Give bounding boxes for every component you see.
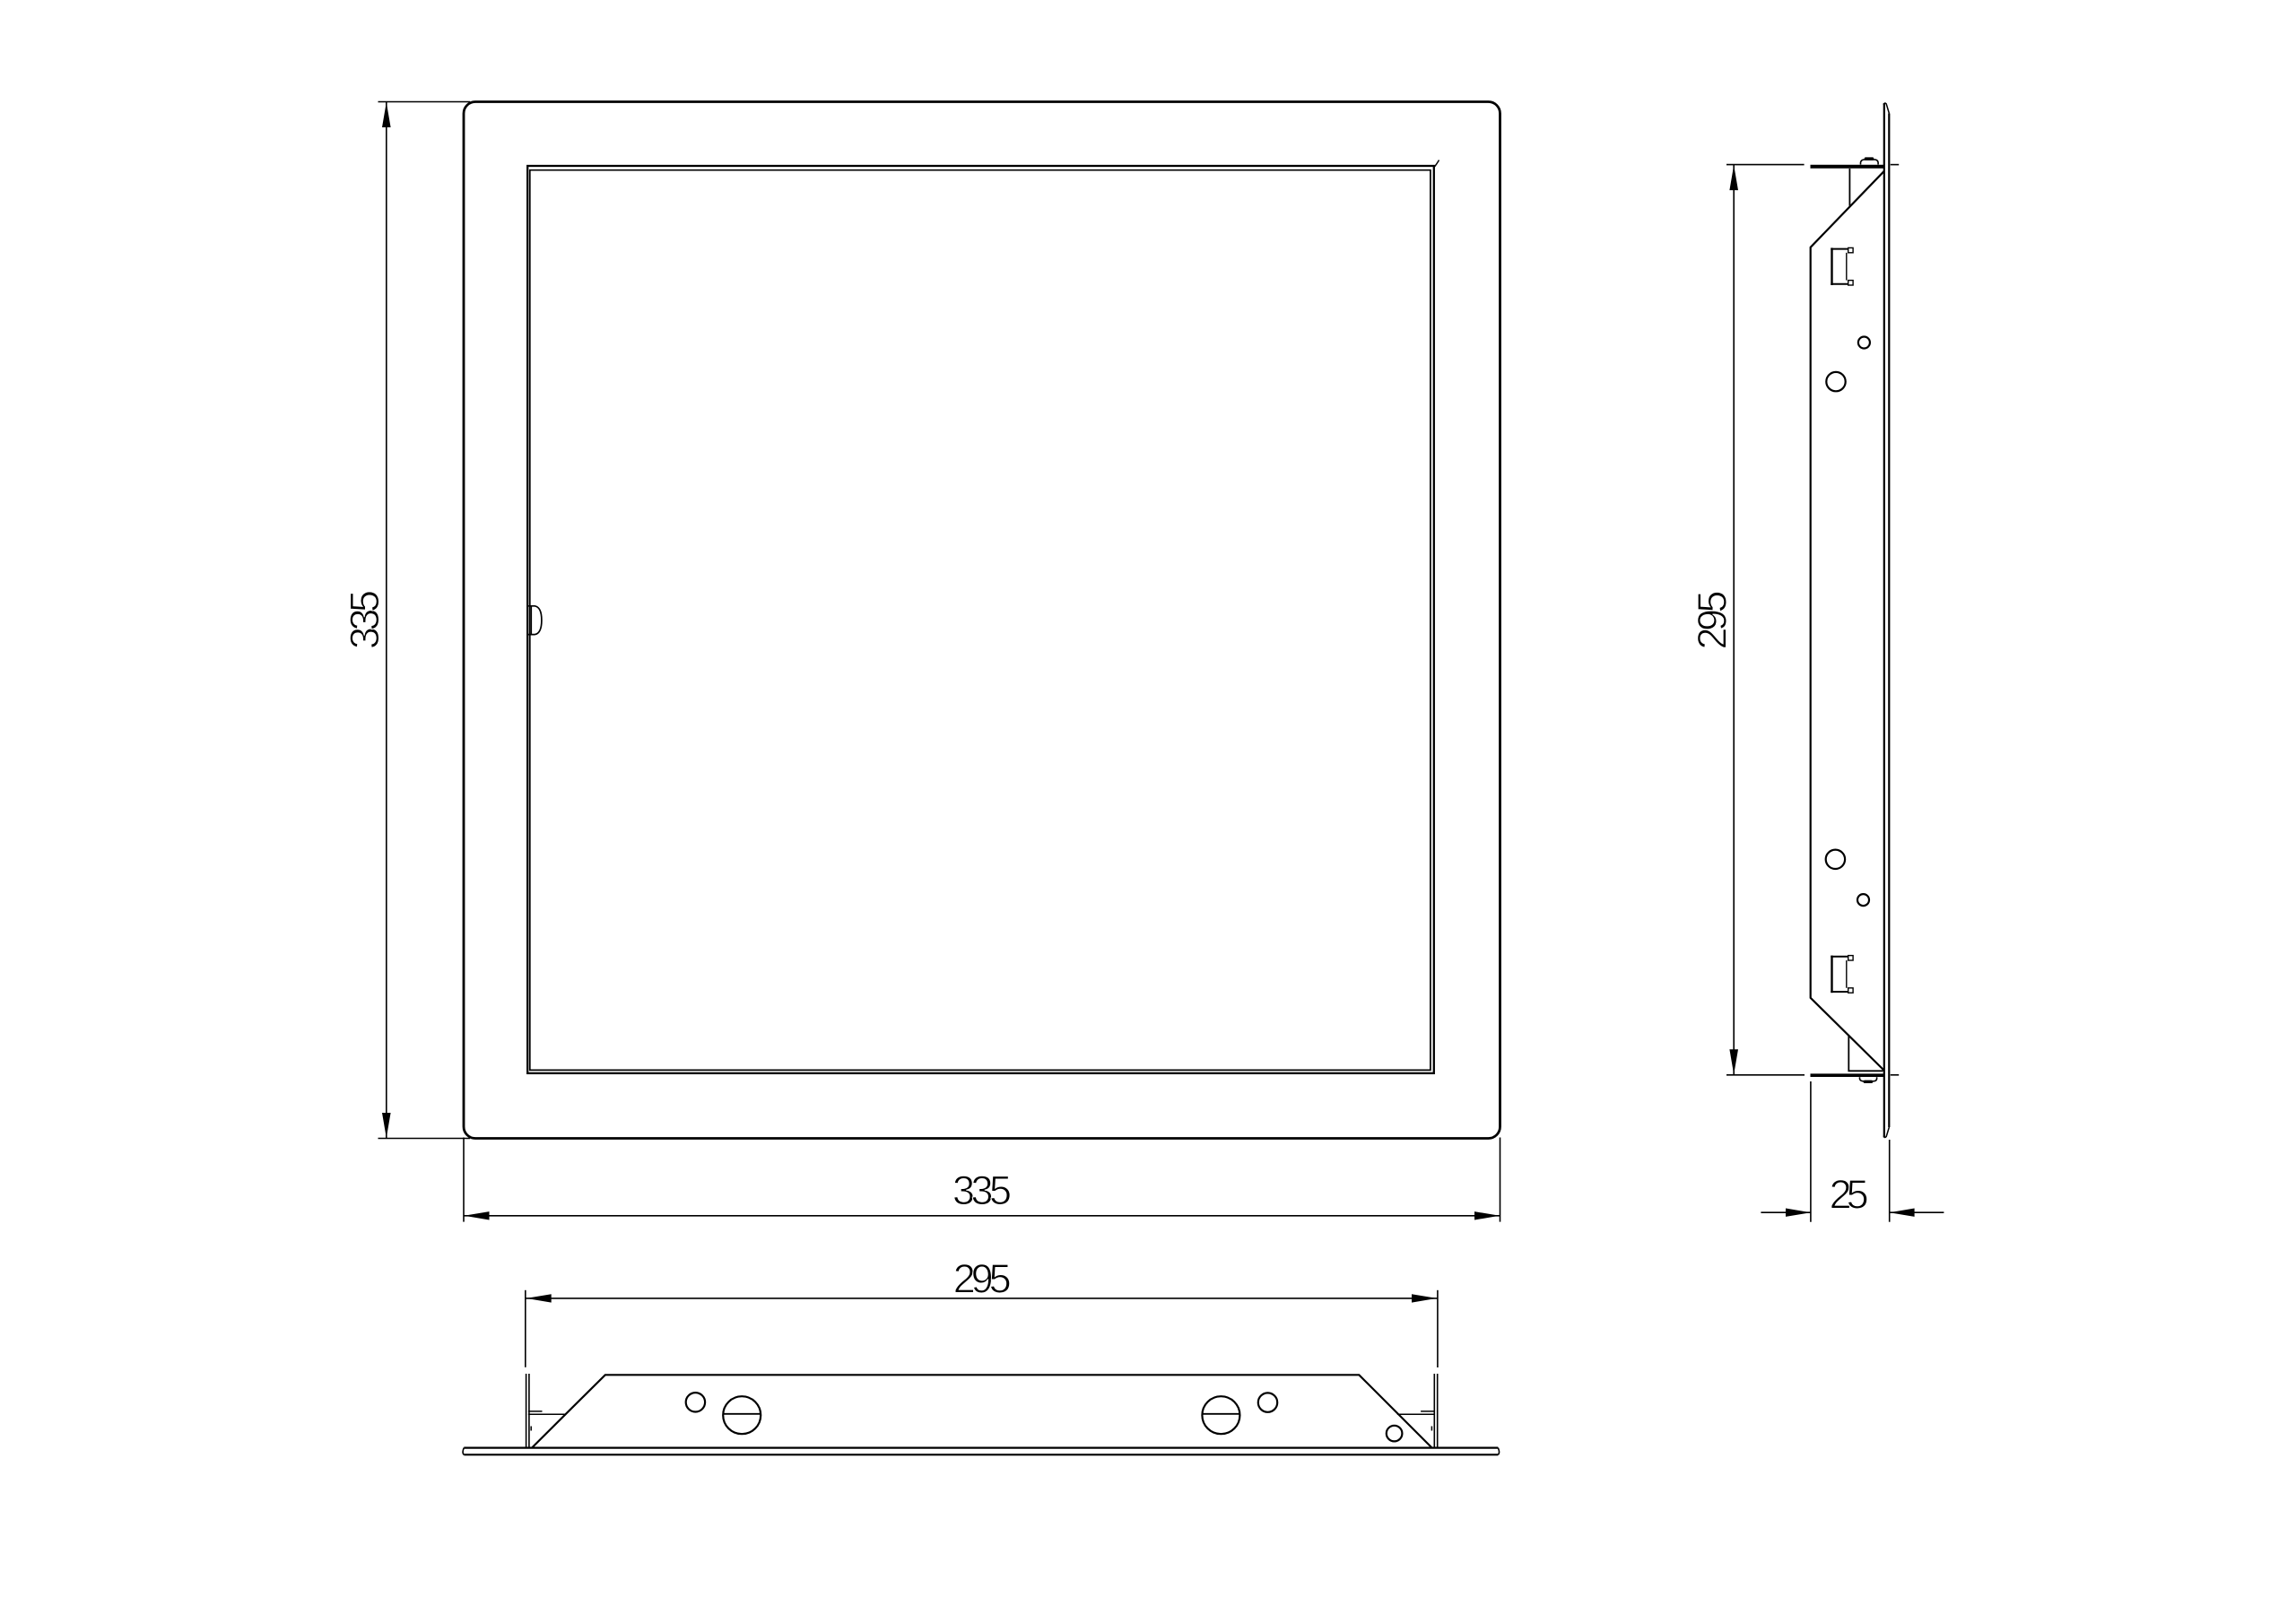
svg-text:295: 295 (1689, 591, 1735, 650)
svg-text:295: 295 (953, 1256, 1012, 1302)
svg-text:335: 335 (952, 1167, 1012, 1213)
svg-text:25: 25 (1830, 1172, 1869, 1218)
svg-text:335: 335 (342, 590, 387, 649)
